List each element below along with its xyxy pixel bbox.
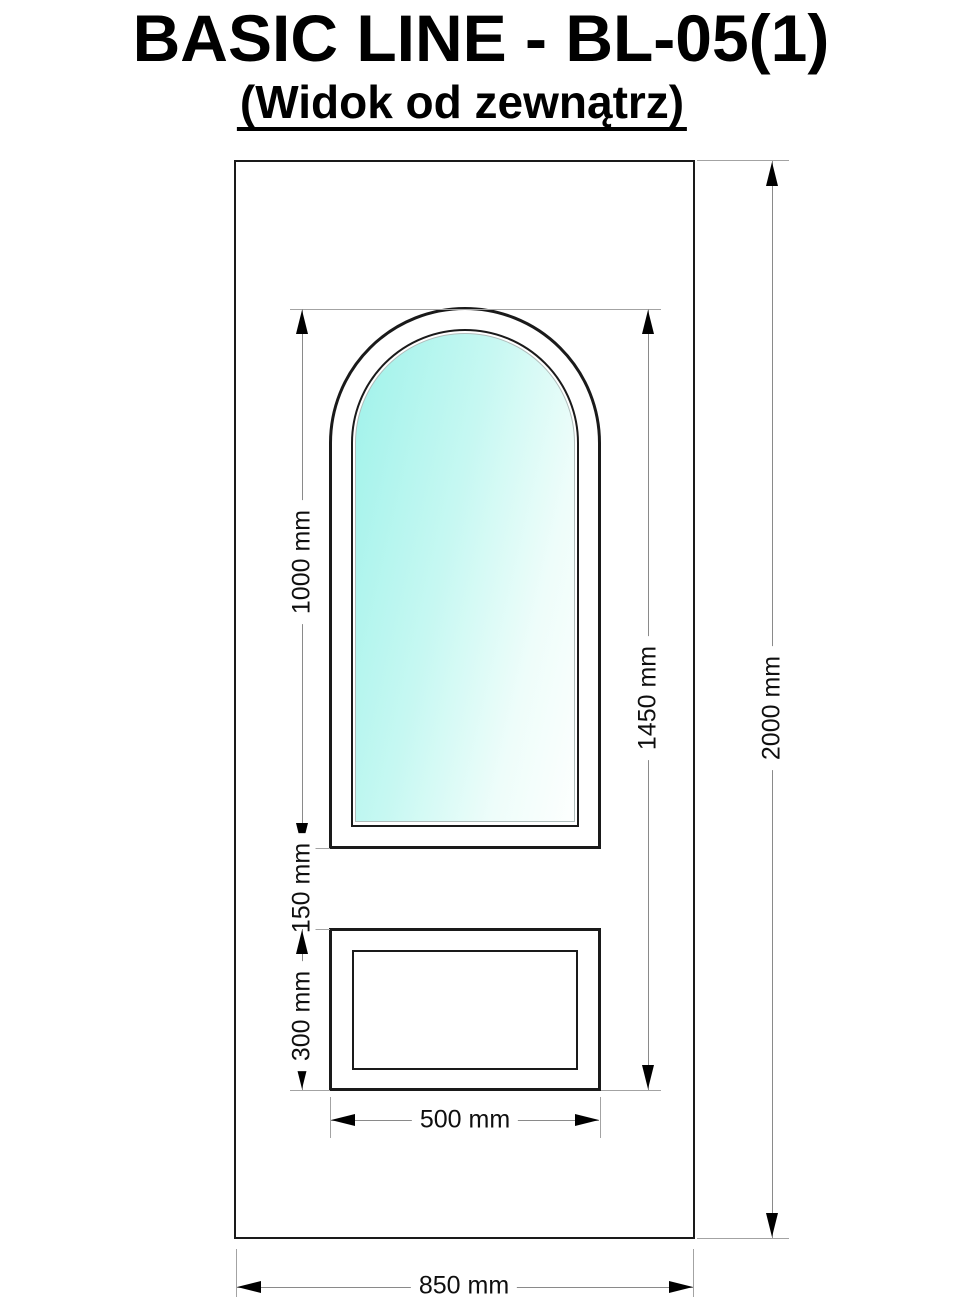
dim-label-window-total: 1450 mm xyxy=(635,636,662,760)
extension-line-arch-top xyxy=(290,309,661,310)
dim-label-gap-height: 150 mm xyxy=(289,833,316,943)
dim-door-height-arrow-top xyxy=(766,162,778,186)
dim-glass-height-arrow-top xyxy=(296,310,308,334)
dim-panel-width-arrow-left xyxy=(331,1114,355,1126)
dim-label-panel-width: 500 mm xyxy=(412,1107,518,1134)
dim-door-height-arrow-bottom xyxy=(766,1213,778,1237)
door-technical-drawing: BASIC LINE - BL-05(1) (Widok od zewnątrz… xyxy=(0,0,962,1300)
dim-label-panel-height: 300 mm xyxy=(289,961,316,1071)
drawing-title: BASIC LINE - BL-05(1) xyxy=(0,2,962,74)
extension-line-panel-right xyxy=(600,1097,601,1138)
extension-line-door-top-right xyxy=(697,160,789,161)
dim-window-total-arrow-bottom xyxy=(642,1065,654,1089)
dim-panel-width-arrow-right xyxy=(575,1114,599,1126)
extension-line-panel-bottom-left xyxy=(290,1090,330,1091)
extension-line-door-bottom-right xyxy=(697,1238,789,1239)
dim-label-door-height: 2000 mm xyxy=(759,646,786,770)
extension-line-panel-bottom-right xyxy=(601,1090,661,1091)
dim-label-glass-height: 1000 mm xyxy=(289,500,316,624)
dim-door-width-arrow-left xyxy=(237,1281,261,1293)
dim-label-door-width: 850 mm xyxy=(411,1273,517,1300)
window-glass xyxy=(355,333,575,822)
extension-line-door-right xyxy=(693,1249,694,1297)
dim-panel-height-arrow-top xyxy=(296,930,308,954)
dim-window-total-arrow-top xyxy=(642,310,654,334)
dim-door-width-arrow-right xyxy=(669,1281,693,1293)
drawing-subtitle: (Widok od zewnątrz) xyxy=(237,79,687,131)
bottom-panel-frame-inner xyxy=(352,950,578,1070)
